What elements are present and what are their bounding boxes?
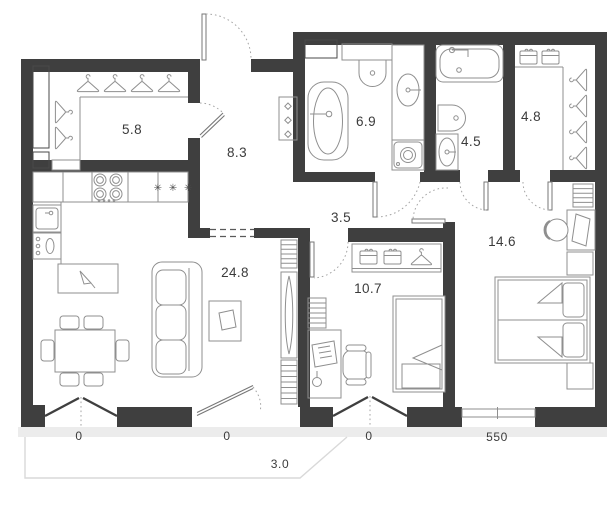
dim-balcony-door: 0 [223, 429, 230, 443]
kitchen-sink-icon [33, 205, 61, 232]
washing-machine-icon [394, 142, 422, 168]
oven-icon [33, 233, 61, 259]
french-window-left [45, 397, 117, 426]
french-window-kids [333, 396, 407, 426]
room-area-corridor: 3.5 [331, 210, 351, 225]
closet-door [200, 103, 225, 138]
chair-icon [41, 340, 54, 361]
radiator-icon [573, 184, 593, 207]
kitchen-island [58, 264, 118, 293]
pillow-icon [563, 323, 584, 357]
dim-bedroom-window: 550 [486, 430, 508, 444]
bath-cabinet [342, 44, 392, 60]
nightstand [567, 363, 593, 389]
fridge-symbol: ✳ ✳ ✳ [154, 183, 195, 194]
dim-balcony-width: 3.0 [271, 457, 289, 471]
stove-icon [94, 174, 122, 201]
bathtub-icon [308, 82, 348, 160]
chair-icon [84, 373, 103, 386]
desk [308, 330, 341, 398]
radiator-icon [281, 240, 297, 268]
sink-icon [436, 134, 458, 170]
wall-sink-icon [359, 60, 386, 87]
hanger-icon [131, 75, 152, 92]
wardrobe [352, 244, 441, 272]
bathtub-icon [436, 45, 503, 82]
room-area-entry-closet: 5.8 [122, 122, 142, 137]
nightstand [567, 252, 593, 275]
hanger-icon [570, 147, 587, 168]
bedroom-door [412, 188, 448, 223]
window-sill-band [18, 427, 607, 437]
hanger-icon [570, 95, 587, 116]
wall-niche [52, 160, 80, 170]
hanger-icon [158, 75, 179, 92]
pillow-icon [563, 283, 584, 317]
entry-closet [55, 75, 188, 160]
dim-kids-window: 0 [365, 429, 372, 443]
balcony-outline [25, 437, 347, 478]
hanger-icon [104, 75, 125, 92]
room-area-bedroom: 14.6 [488, 234, 516, 249]
radiator-icon [281, 360, 297, 404]
bathroom-door [373, 182, 420, 217]
single-bed-icon [393, 296, 445, 392]
hanger-icon [570, 121, 587, 142]
room-area-hallway: 8.3 [227, 145, 247, 160]
bedroom-furniture [495, 184, 595, 389]
master-closet-door [523, 182, 552, 210]
storage-box-icon [360, 249, 377, 264]
chair-icon [60, 373, 79, 386]
floor-plan: ✳ ✳ ✳ [0, 0, 615, 507]
room-area-bathroom: 6.9 [356, 114, 376, 129]
hanger-icon [411, 249, 431, 265]
master-bath-door [460, 182, 488, 210]
fridge-icon: ✳ ✳ ✳ [154, 183, 195, 194]
mug-icon [313, 378, 322, 387]
coffee-table [209, 301, 241, 341]
room-area-master-bath: 4.5 [461, 134, 481, 149]
open-passage-dashed [210, 230, 254, 237]
entrance-door [202, 14, 251, 60]
balcony-door [197, 386, 261, 416]
office-chair-icon [343, 345, 371, 385]
double-bed-icon [495, 277, 590, 363]
storage-box-icon [384, 249, 401, 264]
chair-icon [116, 340, 129, 361]
hanger-icon [570, 69, 587, 90]
toilet-icon [438, 105, 466, 131]
window-bedroom [462, 407, 535, 419]
hanger-icon [55, 127, 72, 148]
knife-icon [80, 271, 95, 288]
storage-box-icon [520, 49, 537, 64]
room-area-master-closet: 4.8 [521, 109, 541, 124]
master-bath-fixtures [436, 45, 503, 170]
chair-icon [60, 316, 79, 329]
floor-plan-drawing: ✳ ✳ ✳ [0, 0, 615, 507]
kids-room-furniture [308, 244, 445, 398]
room-area-kids-room: 10.7 [354, 281, 382, 296]
sofa-icon [152, 262, 202, 377]
mirror-panel [281, 272, 297, 358]
dim-window-left: 0 [75, 429, 82, 443]
dining-table [41, 316, 129, 386]
kids-room-door [310, 242, 348, 278]
radiator-icon [308, 298, 326, 328]
bathroom-fixtures [308, 44, 424, 170]
living-room-furniture [41, 240, 297, 404]
hanger-icon [55, 101, 72, 122]
hanger-icon [77, 75, 98, 92]
bath-counter [392, 45, 424, 170]
chair-icon [84, 316, 103, 329]
vanity-table [545, 210, 595, 250]
storage-box-icon [542, 49, 559, 64]
room-area-kitchen-living: 24.8 [221, 265, 249, 280]
